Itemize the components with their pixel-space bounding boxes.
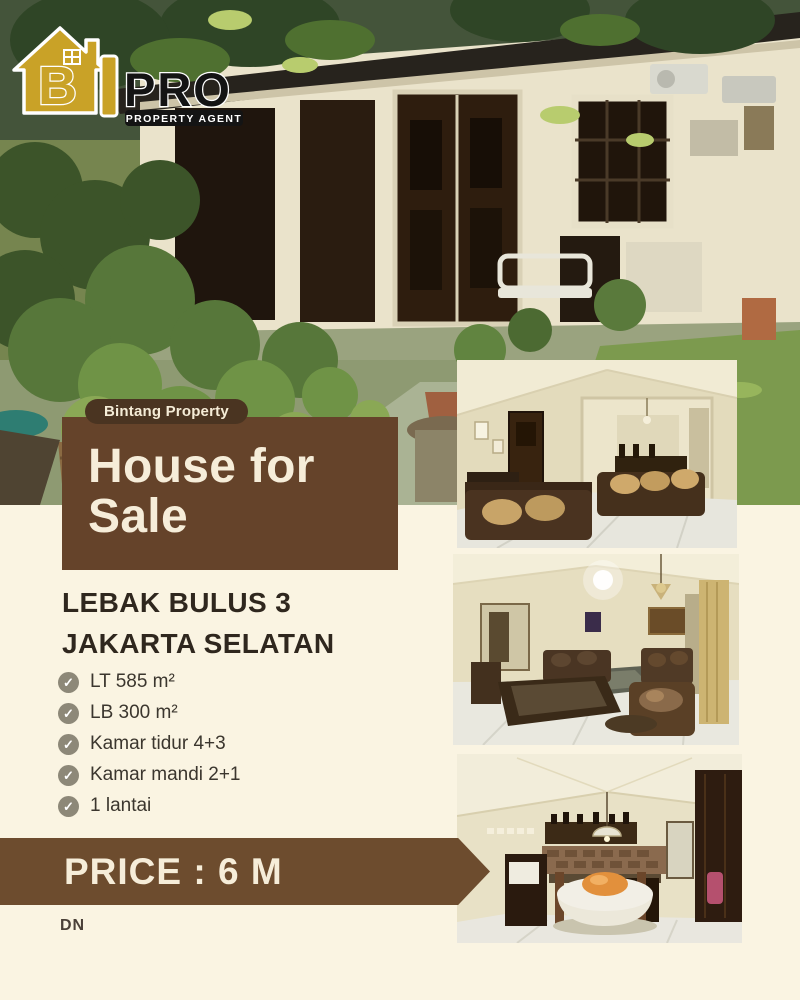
logo-tagline-text: PROPERTY AGENT [126, 113, 242, 125]
logo-pro-text: PRO [124, 63, 232, 116]
check-circle-icon: ✓ [58, 672, 79, 693]
feature-item-lt: ✓ LT 585 m² [58, 671, 241, 693]
feature-label: LT 585 m² [90, 671, 175, 693]
agency-badge-label: Bintang Property [104, 403, 229, 420]
feature-label: LB 300 m² [90, 702, 178, 724]
living-room-photo-1 [457, 360, 737, 548]
feature-label: 1 lantai [90, 795, 151, 817]
kitchen-photo [457, 754, 742, 943]
feature-item-bathrooms: ✓ Kamar mandi 2+1 [58, 764, 241, 786]
title-line-1: House for [88, 442, 398, 492]
check-circle-icon: ✓ [58, 765, 79, 786]
feature-label: Kamar mandi 2+1 [90, 764, 241, 786]
feature-label: Kamar tidur 4+3 [90, 733, 226, 755]
kitchen-illustration [457, 754, 742, 943]
check-circle-icon: ✓ [58, 703, 79, 724]
footer-initials: DN [60, 917, 85, 935]
check-circle-icon: ✓ [58, 796, 79, 817]
location-line-1: LEBAK BULUS 3 [62, 583, 335, 624]
feature-item-lb: ✓ LB 300 m² [58, 702, 241, 724]
feature-item-floors: ✓ 1 lantai [58, 795, 241, 817]
title-box: House for Sale [62, 417, 398, 570]
check-circle-icon: ✓ [58, 734, 79, 755]
bipro-logo: B PRO PROPERTY AGENT [8, 14, 252, 130]
property-flyer: B PRO PROPERTY AGENT [0, 0, 800, 1000]
location-heading: LEBAK BULUS 3 JAKARTA SELATAN [62, 583, 335, 664]
feature-item-bedrooms: ✓ Kamar tidur 4+3 [58, 733, 241, 755]
agency-badge: Bintang Property [85, 399, 248, 424]
feature-list: ✓ LT 585 m² ✓ LB 300 m² ✓ Kamar tidur 4+… [58, 671, 241, 817]
price-label: PRICE : 6 M [64, 851, 283, 893]
title-line-2: Sale [88, 492, 398, 542]
house-icon: B [14, 28, 117, 116]
living-room-photo-2 [453, 554, 739, 745]
bipro-logo-graphic: B PRO PROPERTY AGENT [8, 14, 252, 130]
location-line-2: JAKARTA SELATAN [62, 624, 335, 665]
living-room-1-illustration [457, 360, 737, 548]
price-banner: PRICE : 6 M [0, 838, 490, 905]
living-room-2-illustration [453, 554, 739, 745]
